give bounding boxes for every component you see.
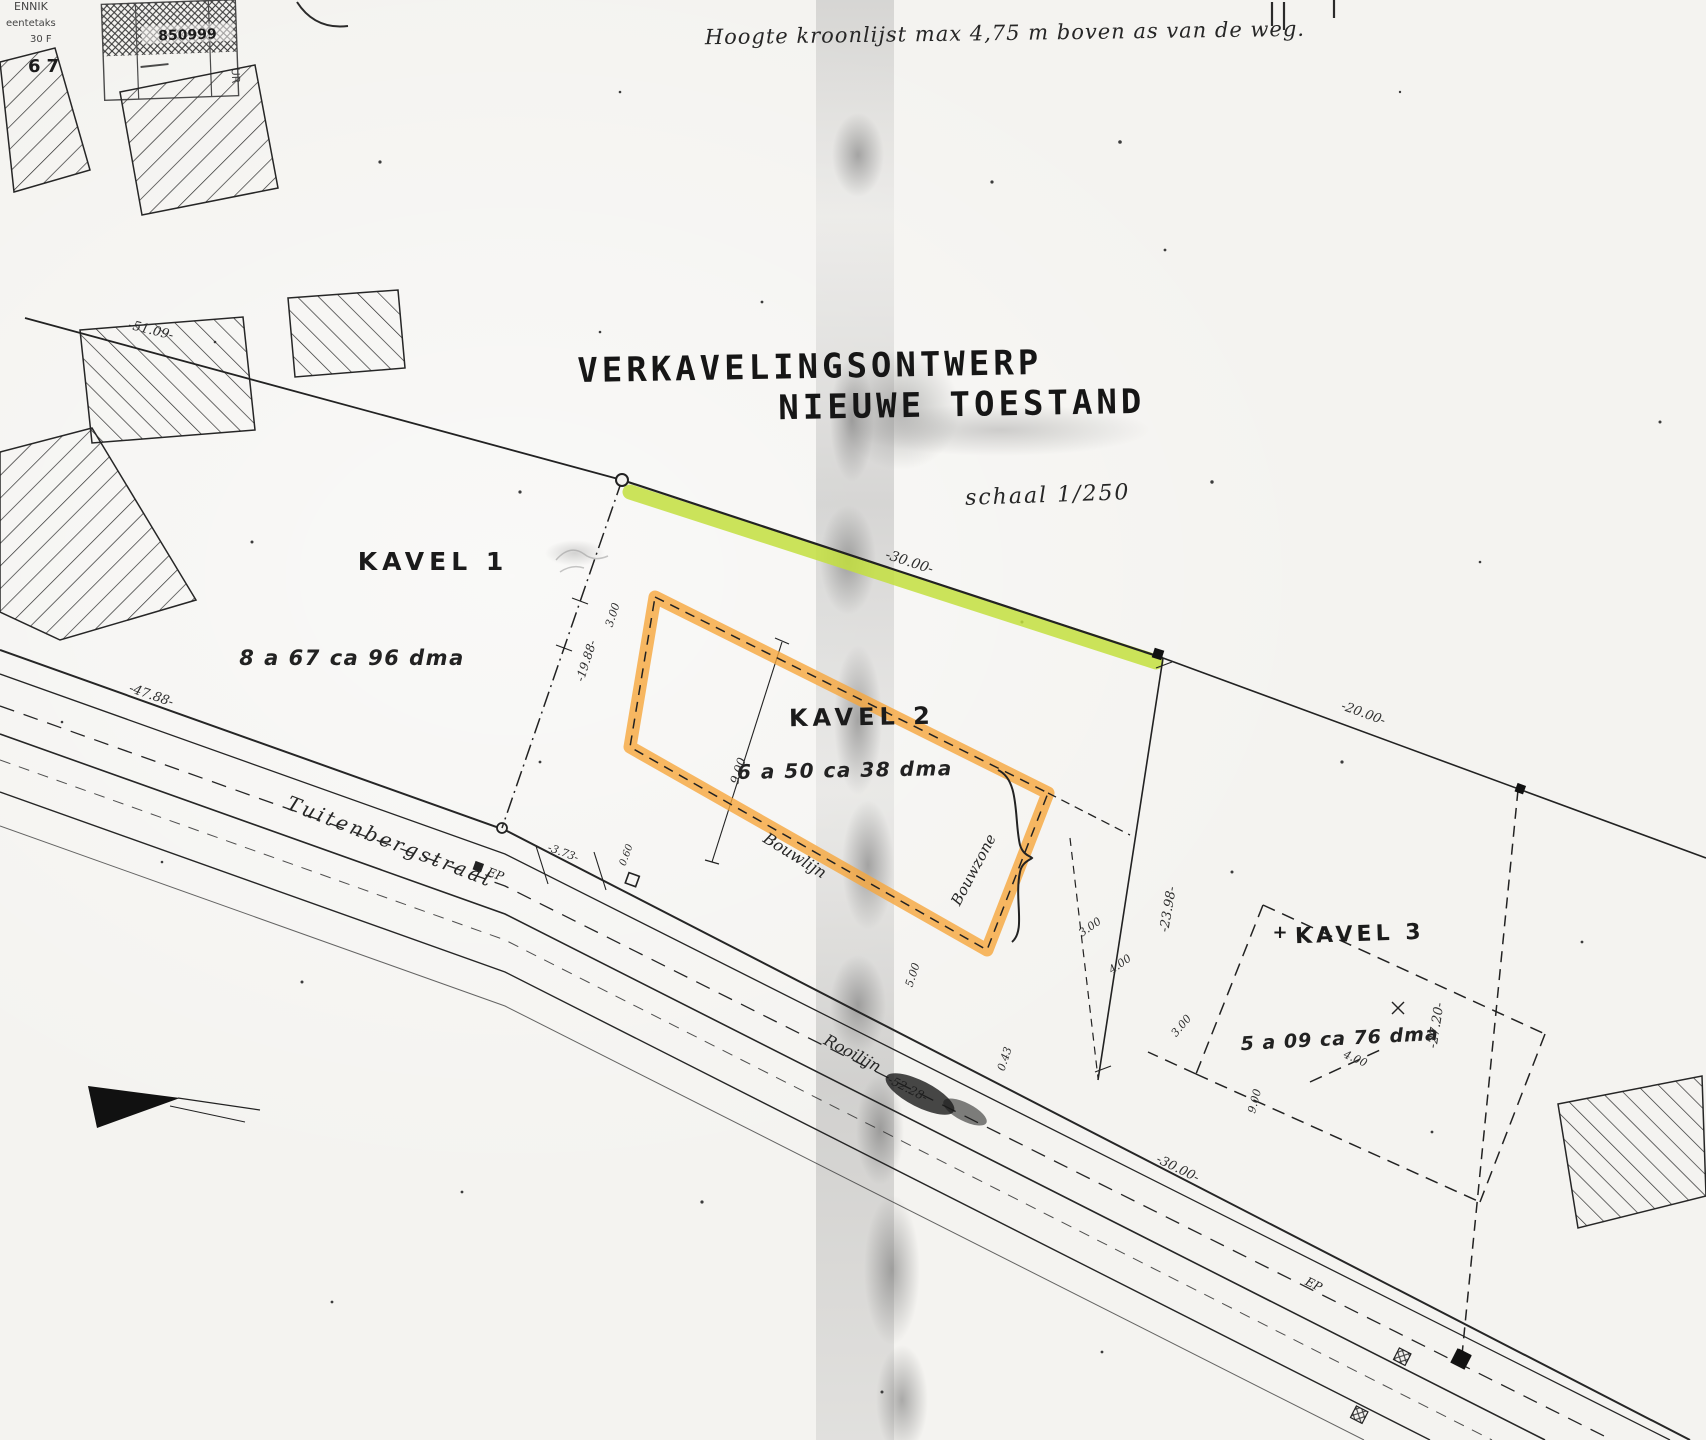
dim-47-88: -47.88- bbox=[127, 681, 175, 710]
dim-4-00-b: 4.00 bbox=[1341, 1047, 1370, 1069]
bottom-left-wedge bbox=[88, 1086, 260, 1128]
fragment-lennik: ENNIK bbox=[14, 0, 49, 13]
dim-0-43: 0.43 bbox=[995, 1045, 1015, 1072]
plan-title-line2: NIEUWE TOESTAND bbox=[778, 382, 1146, 428]
dim-27-20: -27.20- bbox=[1426, 1002, 1448, 1050]
dim-3-00-b: 3.00 bbox=[1076, 915, 1104, 940]
dim-30-00-b: -30.00- bbox=[1154, 1152, 1202, 1186]
note-roof-height: Hoogte kroonlijst max 4,75 m boven as va… bbox=[704, 17, 1305, 49]
kavel3-plus-mark: + bbox=[1272, 922, 1287, 943]
bouwzone-label: Bouwzone bbox=[947, 831, 1000, 909]
fragment-gemeentetaks: eentetaks bbox=[6, 18, 56, 29]
plan-scale: schaal 1/250 bbox=[965, 480, 1131, 511]
marker-square bbox=[625, 873, 639, 887]
kavel3-cross-mark bbox=[1392, 1002, 1404, 1014]
boundary-node-square-2 bbox=[1515, 783, 1527, 795]
dim-0-60: 0.60 bbox=[618, 842, 636, 867]
street-name: Tuitenbergstraat bbox=[283, 791, 497, 892]
dim-3-00-a: 3.00 bbox=[603, 601, 623, 628]
kavel3-label: KAVEL 3 bbox=[1295, 920, 1425, 950]
kavel1-label: KAVEL 1 bbox=[358, 547, 508, 576]
dim-5-00: 5.00 bbox=[903, 961, 923, 988]
plan-canvas: 850999 UR ENNIK eentetaks 30 F 67 bbox=[0, 0, 1706, 1440]
dim-20-00: -20.00- bbox=[1339, 699, 1387, 729]
fragment-30f: 30 F bbox=[30, 34, 52, 45]
dim-19-88: -19.88- bbox=[573, 638, 599, 683]
stamp-number: 850999 bbox=[158, 26, 217, 44]
dim-4-00-a: 4.00 bbox=[1105, 952, 1133, 977]
kavel1-area: 8 a 67 ca 96 dma bbox=[239, 646, 465, 670]
scanned-subdivision-plan: 850999 UR ENNIK eentetaks 30 F 67 bbox=[0, 0, 1706, 1440]
kavel3-area: 5 a 09 ca 76 dma bbox=[1240, 1023, 1439, 1055]
dim-23-98: -23.98- bbox=[1157, 885, 1180, 933]
kavel2-label: KAVEL 2 bbox=[789, 702, 935, 733]
arc-fragment bbox=[297, 2, 348, 27]
dimension-labels: -51.09- -47.88- -30.00- -20.00- -19.88- … bbox=[127, 318, 1448, 1186]
boundary-node-circle-top bbox=[616, 474, 628, 486]
kavel2-area: 6 a 50 ca 38 dma bbox=[737, 756, 953, 784]
dim-9-00-b: 9.00 bbox=[1245, 1088, 1264, 1115]
utility-square-1 bbox=[1393, 1348, 1410, 1365]
utility-square-2 bbox=[1350, 1406, 1367, 1423]
dim-3-00-c: 3.00 bbox=[1168, 1012, 1194, 1039]
ep-label-2: EP bbox=[1302, 1274, 1325, 1295]
